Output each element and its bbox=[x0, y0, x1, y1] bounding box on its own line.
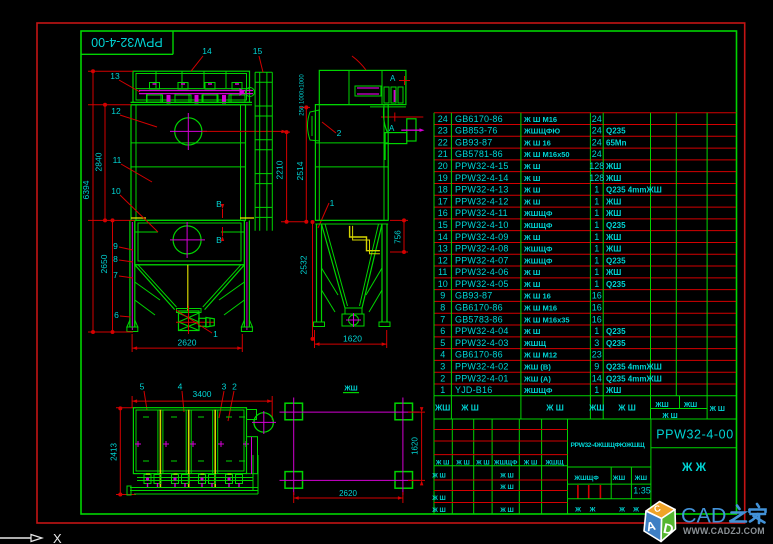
svg-text:ЖШ: ЖШ bbox=[588, 403, 604, 412]
svg-text:ЖШ: ЖШ bbox=[343, 386, 357, 393]
svg-text:Ж Ш: Ж Ш bbox=[455, 460, 470, 467]
svg-text:Ж Ш: Ж Ш bbox=[523, 268, 541, 277]
svg-text:PPW32-4-00: PPW32-4-00 bbox=[91, 35, 163, 49]
svg-text:ЖШ: ЖШ bbox=[605, 233, 621, 242]
svg-text:ЖШ: ЖШ bbox=[634, 475, 648, 482]
svg-text:Ж Ш: Ж Ш bbox=[523, 460, 538, 467]
svg-text:ЖШЩФЮ: ЖШЩФЮ bbox=[523, 127, 560, 136]
svg-text:16: 16 bbox=[592, 303, 602, 313]
svg-text:7: 7 bbox=[113, 270, 118, 280]
svg-text:Ж Ш: Ж Ш bbox=[523, 327, 541, 336]
svg-text:Q235: Q235 bbox=[606, 327, 626, 336]
svg-text:Q235: Q235 bbox=[606, 221, 626, 230]
svg-text:11: 11 bbox=[438, 267, 447, 277]
svg-text:22: 22 bbox=[438, 137, 448, 147]
svg-text:Ж Ш: Ж Ш bbox=[431, 507, 446, 514]
svg-text:Q235 4mmЖШ: Q235 4mmЖШ bbox=[606, 374, 662, 383]
svg-text:23: 23 bbox=[592, 350, 602, 360]
svg-text:9: 9 bbox=[440, 291, 445, 301]
svg-text:15: 15 bbox=[438, 220, 448, 230]
svg-text:ЖШ: ЖШ bbox=[605, 162, 621, 171]
svg-text:Ж Ш: Ж Ш bbox=[617, 403, 636, 412]
svg-text:ЖШ: ЖШ bbox=[612, 475, 626, 482]
svg-text:WWW.CADZJ.COM: WWW.CADZJ.COM bbox=[683, 526, 765, 536]
svg-text:ЖШ: ЖШ bbox=[605, 245, 621, 254]
svg-text:5: 5 bbox=[440, 338, 445, 348]
svg-text:5: 5 bbox=[140, 382, 145, 392]
svg-text:1: 1 bbox=[594, 244, 599, 254]
svg-text:8: 8 bbox=[113, 254, 118, 264]
svg-text:ЖШ: ЖШ bbox=[605, 197, 621, 206]
svg-text:PPW32-4ЖШЩФЮЖШЩ: PPW32-4ЖШЩФЮЖШЩ bbox=[571, 442, 645, 449]
svg-text:PPW32-4-03: PPW32-4-03 bbox=[455, 338, 509, 348]
svg-text:13: 13 bbox=[110, 71, 120, 81]
svg-text:ЖШЩФ: ЖШЩФ bbox=[573, 475, 599, 482]
svg-text:Ж Ш 16: Ж Ш 16 bbox=[523, 292, 551, 301]
svg-text:Q235: Q235 bbox=[606, 127, 626, 136]
svg-text:YJD-B16: YJD-B16 bbox=[455, 385, 492, 395]
svg-text:2650: 2650 bbox=[99, 254, 109, 273]
svg-text:250 1000x1000: 250 1000x1000 bbox=[300, 74, 306, 116]
svg-text:ЖШ: ЖШ bbox=[605, 386, 621, 395]
svg-text:Ж Ш: Ж Ш bbox=[475, 460, 490, 467]
svg-text:Ж: Ж bbox=[632, 507, 639, 514]
svg-text:2532: 2532 bbox=[299, 255, 309, 274]
svg-text:2: 2 bbox=[337, 128, 342, 138]
svg-text:24: 24 bbox=[592, 137, 602, 147]
svg-text:GB6170-86: GB6170-86 bbox=[455, 114, 503, 124]
svg-text:ЖШ (B): ЖШ (B) bbox=[523, 363, 551, 372]
svg-text:23: 23 bbox=[438, 126, 448, 136]
svg-text:PPW32-4-10: PPW32-4-10 bbox=[455, 220, 509, 230]
svg-text:Ж Ш: Ж Ш bbox=[523, 174, 541, 183]
svg-text:3: 3 bbox=[594, 338, 599, 348]
svg-text:PPW32-4-13: PPW32-4-13 bbox=[455, 185, 509, 195]
svg-text:1: 1 bbox=[594, 185, 599, 195]
svg-text:PPW32-4-00: PPW32-4-00 bbox=[656, 428, 734, 442]
svg-text:1: 1 bbox=[594, 255, 599, 265]
svg-text:Ж Ш: Ж Ш bbox=[460, 403, 479, 412]
svg-text:10: 10 bbox=[111, 186, 121, 196]
svg-text:14: 14 bbox=[202, 46, 212, 56]
svg-text:ЖШ (A): ЖШ (A) bbox=[523, 374, 551, 383]
svg-text:3400: 3400 bbox=[193, 389, 212, 399]
svg-text:Ж Ш: Ж Ш bbox=[523, 162, 541, 171]
svg-text:17: 17 bbox=[438, 196, 448, 206]
svg-text:PPW32-4-15: PPW32-4-15 bbox=[455, 161, 509, 171]
svg-text:ЖШЩФ: ЖШЩФ bbox=[523, 209, 553, 218]
svg-text:Ж: Ж bbox=[618, 507, 625, 514]
svg-text:ЖШЩФ: ЖШЩФ bbox=[523, 221, 553, 230]
svg-text:Ж Ш: Ж Ш bbox=[523, 186, 541, 195]
svg-text:14: 14 bbox=[438, 232, 448, 242]
svg-text:A: A bbox=[390, 74, 396, 83]
svg-text:GB5781-86: GB5781-86 bbox=[455, 149, 503, 159]
svg-text:7: 7 bbox=[440, 314, 445, 324]
svg-text:Ж Ш: Ж Ш bbox=[499, 507, 514, 514]
svg-text:PPW32-4-08: PPW32-4-08 bbox=[455, 244, 509, 254]
svg-text:2620: 2620 bbox=[178, 337, 197, 347]
svg-text:9: 9 bbox=[113, 241, 118, 251]
svg-text:PPW32-4-02: PPW32-4-02 bbox=[455, 362, 509, 372]
svg-text:Ж Ш: Ж Ш bbox=[661, 413, 677, 420]
svg-text:PPW32-4-11: PPW32-4-11 bbox=[455, 208, 508, 218]
svg-text:756: 756 bbox=[394, 230, 403, 244]
svg-text:PPW32-4-07: PPW32-4-07 bbox=[455, 255, 509, 265]
svg-text:18: 18 bbox=[438, 185, 448, 195]
svg-text:Ж Ж: Ж Ж bbox=[681, 462, 707, 474]
svg-text:Ж Ш M16x35: Ж Ш M16x35 bbox=[523, 315, 570, 324]
svg-text:Ж Ш M16: Ж Ш M16 bbox=[523, 304, 557, 313]
svg-text:A: A bbox=[389, 124, 395, 133]
svg-text:8: 8 bbox=[440, 303, 445, 313]
svg-text:1: 1 bbox=[594, 220, 599, 230]
svg-text:1620: 1620 bbox=[411, 437, 420, 455]
svg-text:3: 3 bbox=[440, 362, 445, 372]
svg-text:19: 19 bbox=[438, 173, 448, 183]
svg-text:2: 2 bbox=[440, 373, 445, 383]
svg-text:1: 1 bbox=[594, 196, 599, 206]
svg-text:2514: 2514 bbox=[295, 161, 305, 180]
svg-text:65Mn: 65Mn bbox=[606, 138, 627, 147]
svg-text:21: 21 bbox=[438, 149, 448, 159]
svg-text:Ж Ш: Ж Ш bbox=[523, 197, 541, 206]
svg-text:2210: 2210 bbox=[275, 160, 285, 179]
svg-text:Ж Ш: Ж Ш bbox=[523, 233, 541, 242]
svg-text:24: 24 bbox=[592, 149, 602, 159]
svg-text:128: 128 bbox=[589, 173, 604, 183]
svg-text:1: 1 bbox=[594, 232, 599, 242]
svg-text:6394: 6394 bbox=[81, 180, 91, 199]
svg-text:Ж Ш M16x50: Ж Ш M16x50 bbox=[523, 150, 570, 159]
svg-text:Q235: Q235 bbox=[606, 280, 626, 289]
svg-text:9: 9 bbox=[594, 362, 599, 372]
svg-text:12: 12 bbox=[438, 255, 448, 265]
svg-text:14: 14 bbox=[592, 373, 602, 383]
svg-text:GB93-87: GB93-87 bbox=[455, 291, 492, 301]
svg-text:Q235 4mmЖШ: Q235 4mmЖШ bbox=[606, 186, 662, 195]
svg-text:16: 16 bbox=[592, 291, 602, 301]
svg-text:GB6170-86: GB6170-86 bbox=[455, 303, 503, 313]
svg-text:PPW32-4-06: PPW32-4-06 bbox=[455, 267, 509, 277]
svg-text:1: 1 bbox=[330, 198, 335, 208]
svg-text:1:35: 1:35 bbox=[633, 486, 651, 496]
svg-text:1: 1 bbox=[594, 326, 599, 336]
svg-text:128: 128 bbox=[589, 161, 604, 171]
svg-text:PPW32-4-04: PPW32-4-04 bbox=[455, 326, 509, 336]
svg-text:ЖШ: ЖШ bbox=[683, 402, 697, 409]
svg-text:Ж Ш: Ж Ш bbox=[435, 460, 450, 467]
svg-text:2840: 2840 bbox=[94, 152, 104, 171]
svg-text:2: 2 bbox=[232, 382, 237, 392]
svg-text:PPW32-4-14: PPW32-4-14 bbox=[455, 173, 509, 183]
svg-text:GB6170-86: GB6170-86 bbox=[455, 350, 503, 360]
svg-text:24: 24 bbox=[592, 126, 602, 136]
svg-text:13: 13 bbox=[438, 244, 448, 254]
svg-text:PPW32-4-09: PPW32-4-09 bbox=[455, 232, 509, 242]
svg-text:Ж Ш: Ж Ш bbox=[545, 403, 564, 412]
svg-text:1: 1 bbox=[594, 208, 599, 218]
svg-text:12: 12 bbox=[111, 106, 121, 116]
svg-text:Ж Ш 16: Ж Ш 16 bbox=[523, 138, 551, 147]
svg-text:1: 1 bbox=[594, 267, 599, 277]
svg-text:ЖШ: ЖШ bbox=[605, 209, 621, 218]
svg-text:ЖШ: ЖШ bbox=[434, 403, 450, 412]
svg-text:16: 16 bbox=[438, 208, 448, 218]
svg-text:Ж Ш: Ж Ш bbox=[523, 280, 541, 289]
svg-text:Ж Ш: Ж Ш bbox=[431, 473, 446, 480]
svg-text:10: 10 bbox=[438, 279, 448, 289]
svg-text:CAD: CAD bbox=[681, 504, 726, 528]
svg-text:3: 3 bbox=[222, 382, 227, 392]
svg-text:1: 1 bbox=[440, 385, 445, 395]
svg-text:4: 4 bbox=[440, 350, 445, 360]
svg-text:PPW32-4-12: PPW32-4-12 bbox=[455, 196, 509, 206]
svg-text:6: 6 bbox=[440, 326, 445, 336]
svg-text:PPW32-4-05: PPW32-4-05 bbox=[455, 279, 509, 289]
svg-text:Ж Ш M12: Ж Ш M12 bbox=[523, 351, 557, 360]
svg-text:24: 24 bbox=[592, 114, 602, 124]
svg-text:ЖШЩ: ЖШЩ bbox=[523, 339, 546, 348]
svg-text:ЖШЩФ: ЖШЩФ bbox=[523, 256, 553, 265]
svg-text:Ж: Ж bbox=[574, 507, 581, 514]
svg-text:Q235: Q235 bbox=[606, 339, 626, 348]
svg-text:PPW32-4-01: PPW32-4-01 bbox=[455, 373, 509, 383]
svg-text:15: 15 bbox=[253, 46, 263, 56]
svg-text:Ж Ш: Ж Ш bbox=[709, 406, 725, 413]
svg-text:2620: 2620 bbox=[339, 489, 357, 498]
svg-text:16: 16 bbox=[592, 314, 602, 324]
svg-text:1: 1 bbox=[594, 385, 599, 395]
svg-text:Ж Ш: Ж Ш bbox=[431, 495, 446, 502]
svg-text:1: 1 bbox=[594, 279, 599, 289]
svg-text:Q235 4mmЖШ: Q235 4mmЖШ bbox=[606, 363, 662, 372]
svg-text:2413: 2413 bbox=[110, 443, 119, 461]
svg-text:Ж Ш M16: Ж Ш M16 bbox=[523, 115, 557, 124]
svg-text:Ж Ш: Ж Ш bbox=[499, 473, 514, 480]
svg-text:X: X bbox=[53, 531, 62, 544]
svg-text:ЖШЩ: ЖШЩ bbox=[544, 460, 564, 467]
svg-text:Ж: Ж bbox=[589, 507, 596, 514]
svg-text:24: 24 bbox=[438, 114, 448, 124]
svg-text:1620: 1620 bbox=[343, 334, 362, 344]
svg-text:Ж Ш: Ж Ш bbox=[499, 484, 514, 491]
svg-text:4: 4 bbox=[178, 382, 183, 392]
svg-text:6: 6 bbox=[114, 310, 119, 320]
svg-text:GB93-87: GB93-87 bbox=[455, 137, 492, 147]
svg-text:GB853-76: GB853-76 bbox=[455, 126, 498, 136]
svg-text:GB5783-86: GB5783-86 bbox=[455, 314, 503, 324]
svg-text:ЖШ: ЖШ bbox=[605, 174, 621, 183]
svg-text:11: 11 bbox=[113, 155, 122, 165]
svg-text:ЖШ: ЖШ bbox=[654, 402, 668, 409]
svg-text:ЖШЩФ: ЖШЩФ bbox=[523, 386, 553, 395]
svg-text:ЖШЩФ: ЖШЩФ bbox=[523, 245, 553, 254]
svg-text:Q235: Q235 bbox=[606, 256, 626, 265]
svg-text:1: 1 bbox=[213, 329, 218, 339]
svg-text:ЖШЩФ: ЖШЩФ bbox=[493, 460, 518, 467]
svg-text:20: 20 bbox=[438, 161, 448, 171]
svg-text:ЖШ: ЖШ bbox=[605, 268, 621, 277]
